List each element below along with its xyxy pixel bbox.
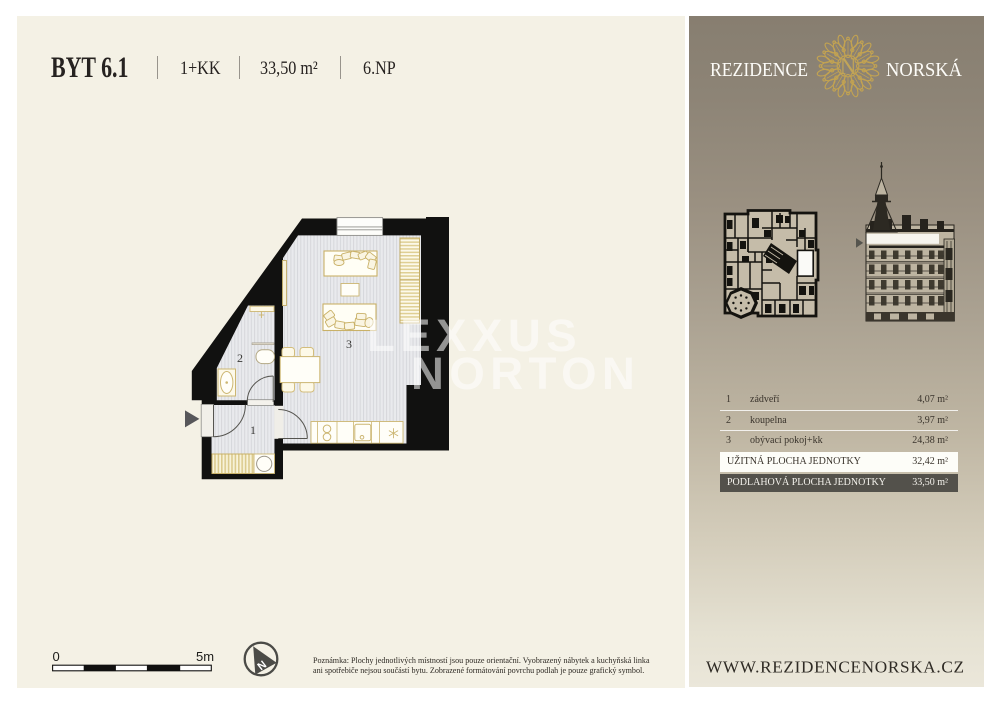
svg-text:3: 3 (346, 337, 352, 351)
svg-text:5m: 5m (196, 649, 214, 664)
svg-text:N: N (840, 54, 857, 79)
svg-text:0: 0 (53, 649, 60, 664)
svg-text:NORTON: NORTON (411, 348, 640, 399)
svg-text:2: 2 (237, 351, 243, 365)
svg-text:REZIDENCE: REZIDENCE (710, 59, 808, 81)
svg-text:NORSKÁ: NORSKÁ (886, 58, 963, 81)
svg-text:1: 1 (250, 423, 256, 437)
svg-text:WWW.REZIDENCENORSKA.CZ: WWW.REZIDENCENORSKA.CZ (706, 658, 964, 677)
